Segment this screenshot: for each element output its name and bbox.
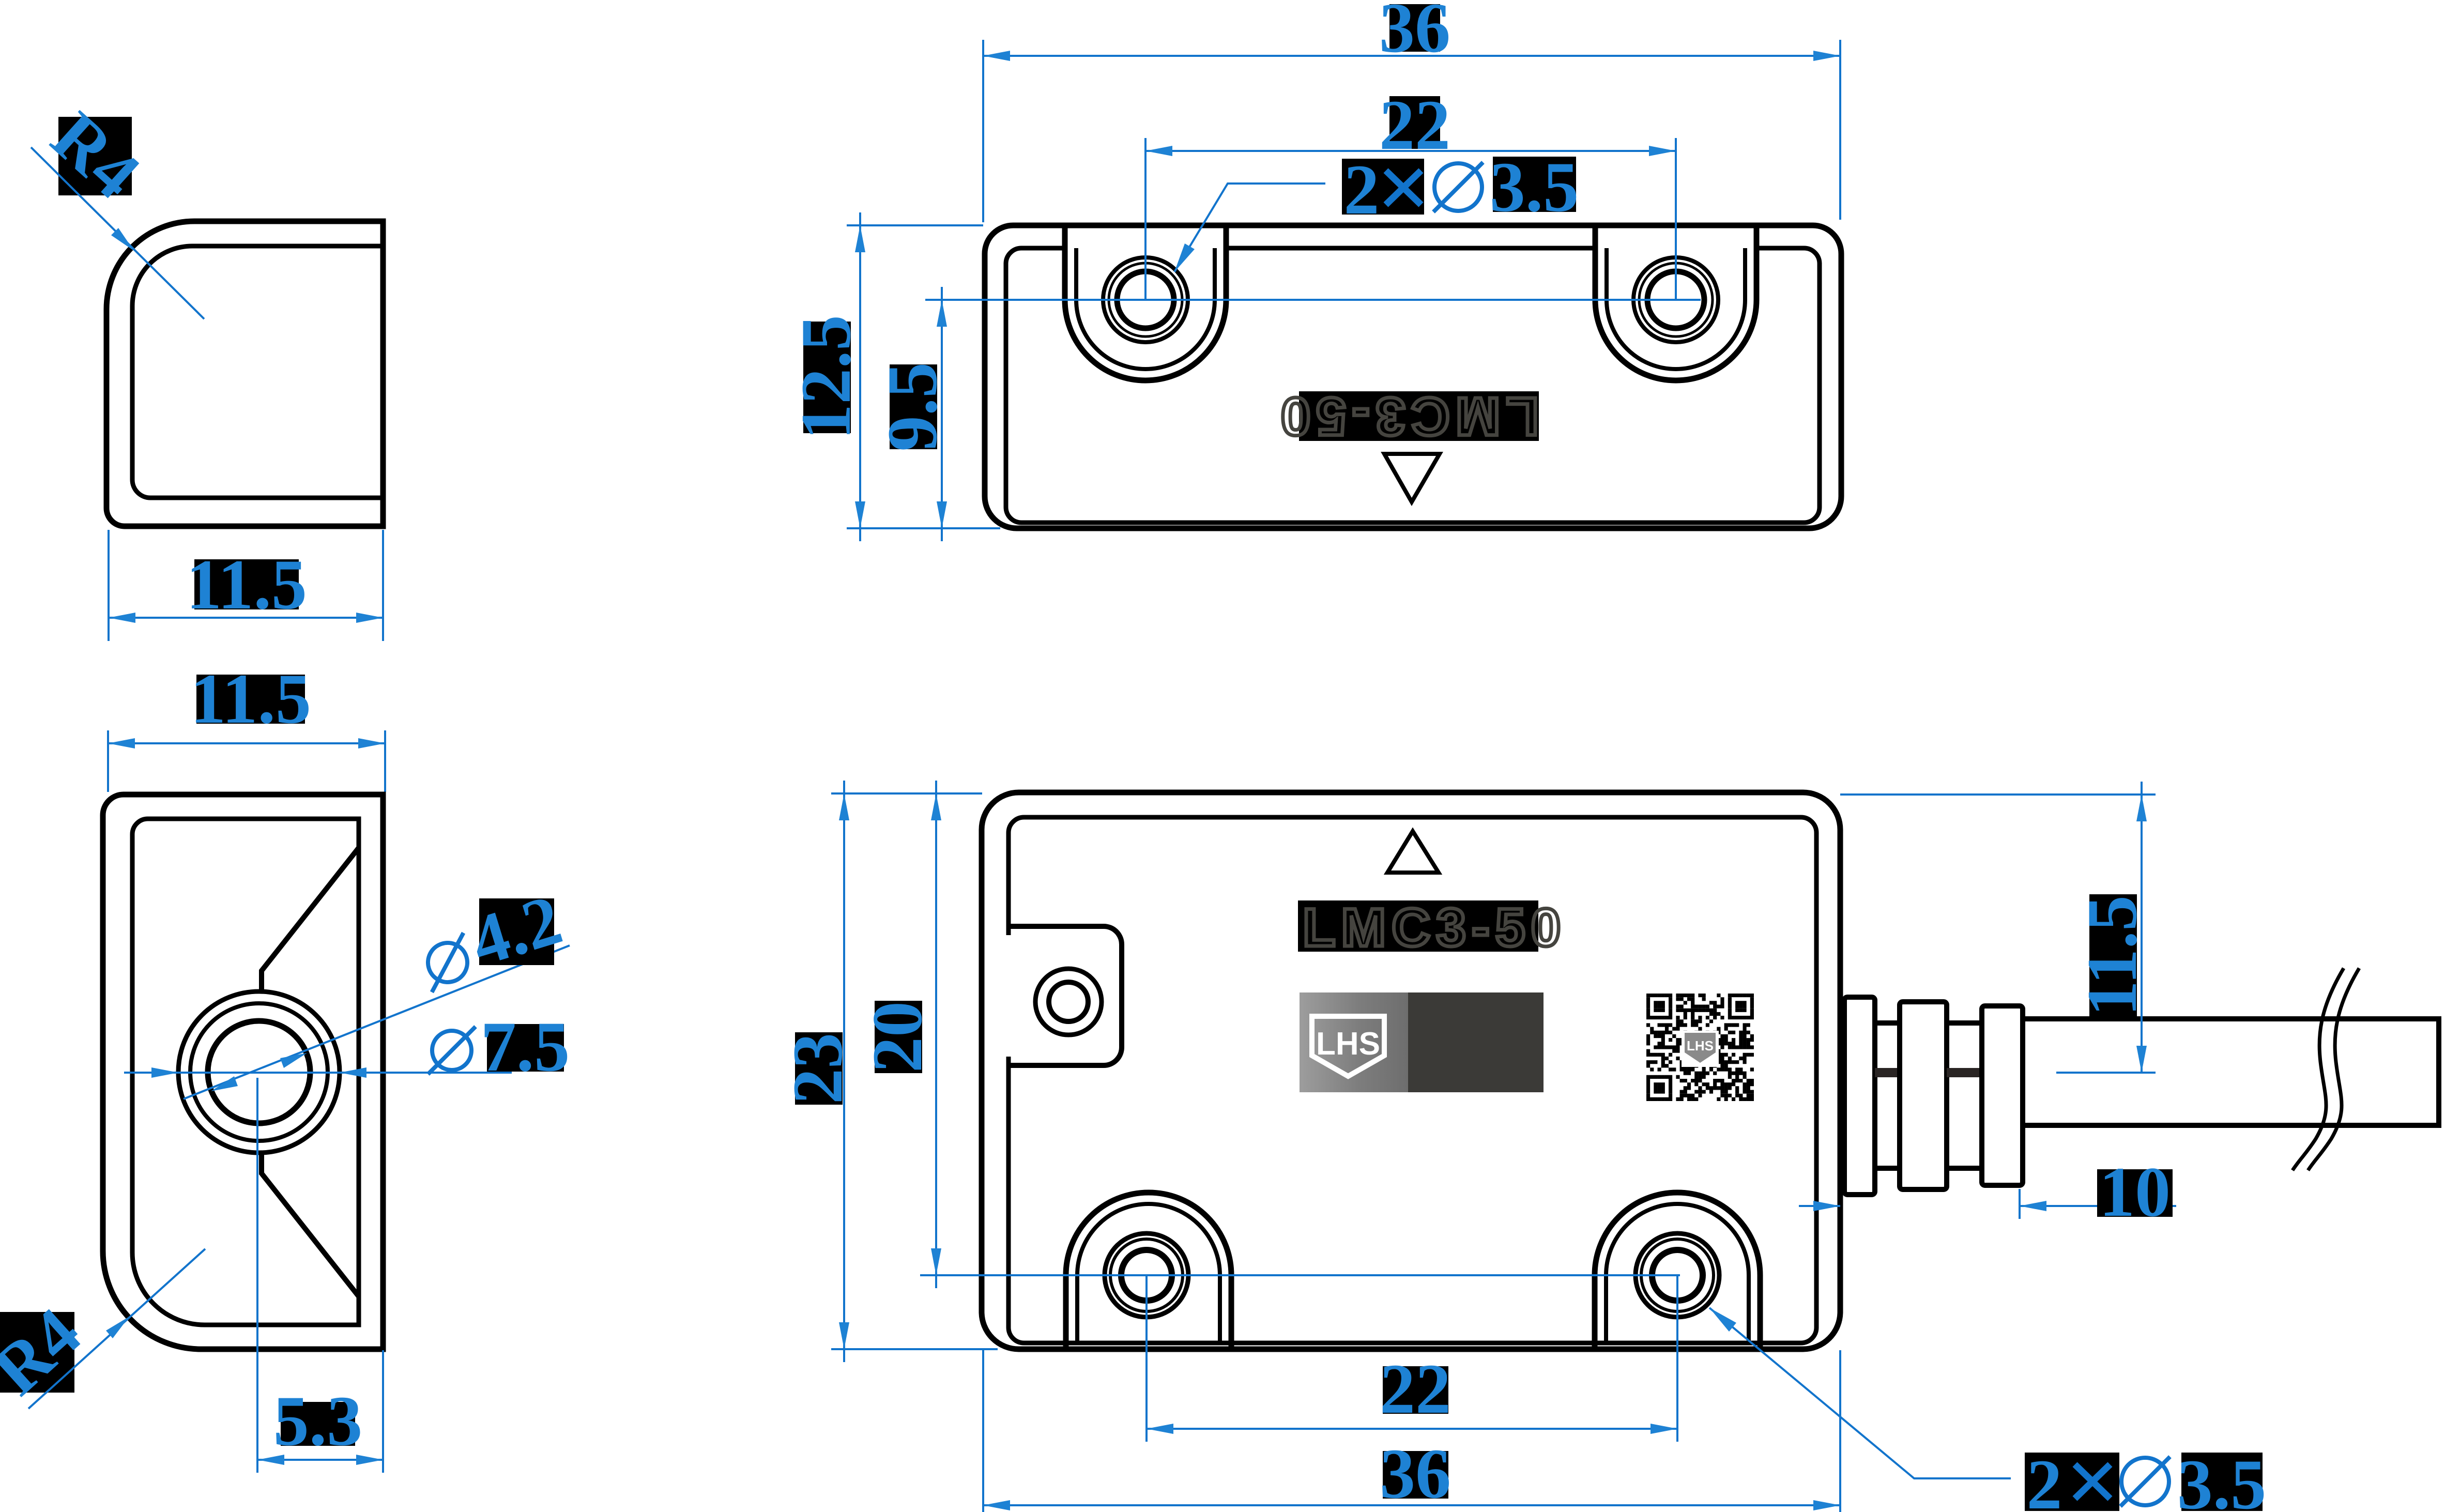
svg-text:20: 20 bbox=[858, 1001, 937, 1073]
svg-text:12.5: 12.5 bbox=[786, 315, 865, 440]
svg-text:10: 10 bbox=[2099, 1152, 2171, 1231]
svg-text:7.5: 7.5 bbox=[481, 1007, 570, 1086]
svg-text:2: 2 bbox=[1344, 150, 1380, 229]
svg-text:36: 36 bbox=[1379, 0, 1450, 67]
svg-text:36: 36 bbox=[1380, 1434, 1451, 1512]
svg-text:9.5: 9.5 bbox=[873, 362, 952, 452]
svg-text:2: 2 bbox=[2027, 1445, 2062, 1512]
svg-text:LMC3-50: LMC3-50 bbox=[1303, 898, 1566, 958]
svg-text:3.5: 3.5 bbox=[1490, 147, 1579, 226]
svg-text:LHS: LHS bbox=[1687, 1038, 1714, 1053]
svg-text:3.5: 3.5 bbox=[2177, 1445, 2267, 1512]
svg-text:5.3: 5.3 bbox=[273, 1381, 363, 1460]
svg-text:23: 23 bbox=[778, 1033, 857, 1104]
svg-text:11.5: 11.5 bbox=[2072, 895, 2151, 1016]
svg-text:LHS: LHS bbox=[1316, 1026, 1380, 1062]
svg-text:LMC3-50: LMC3-50 bbox=[1275, 386, 1539, 446]
svg-text:22: 22 bbox=[1379, 85, 1450, 164]
svg-text:11.5: 11.5 bbox=[190, 659, 311, 738]
svg-text:22: 22 bbox=[1380, 1349, 1451, 1428]
svg-text:11.5: 11.5 bbox=[186, 545, 307, 624]
